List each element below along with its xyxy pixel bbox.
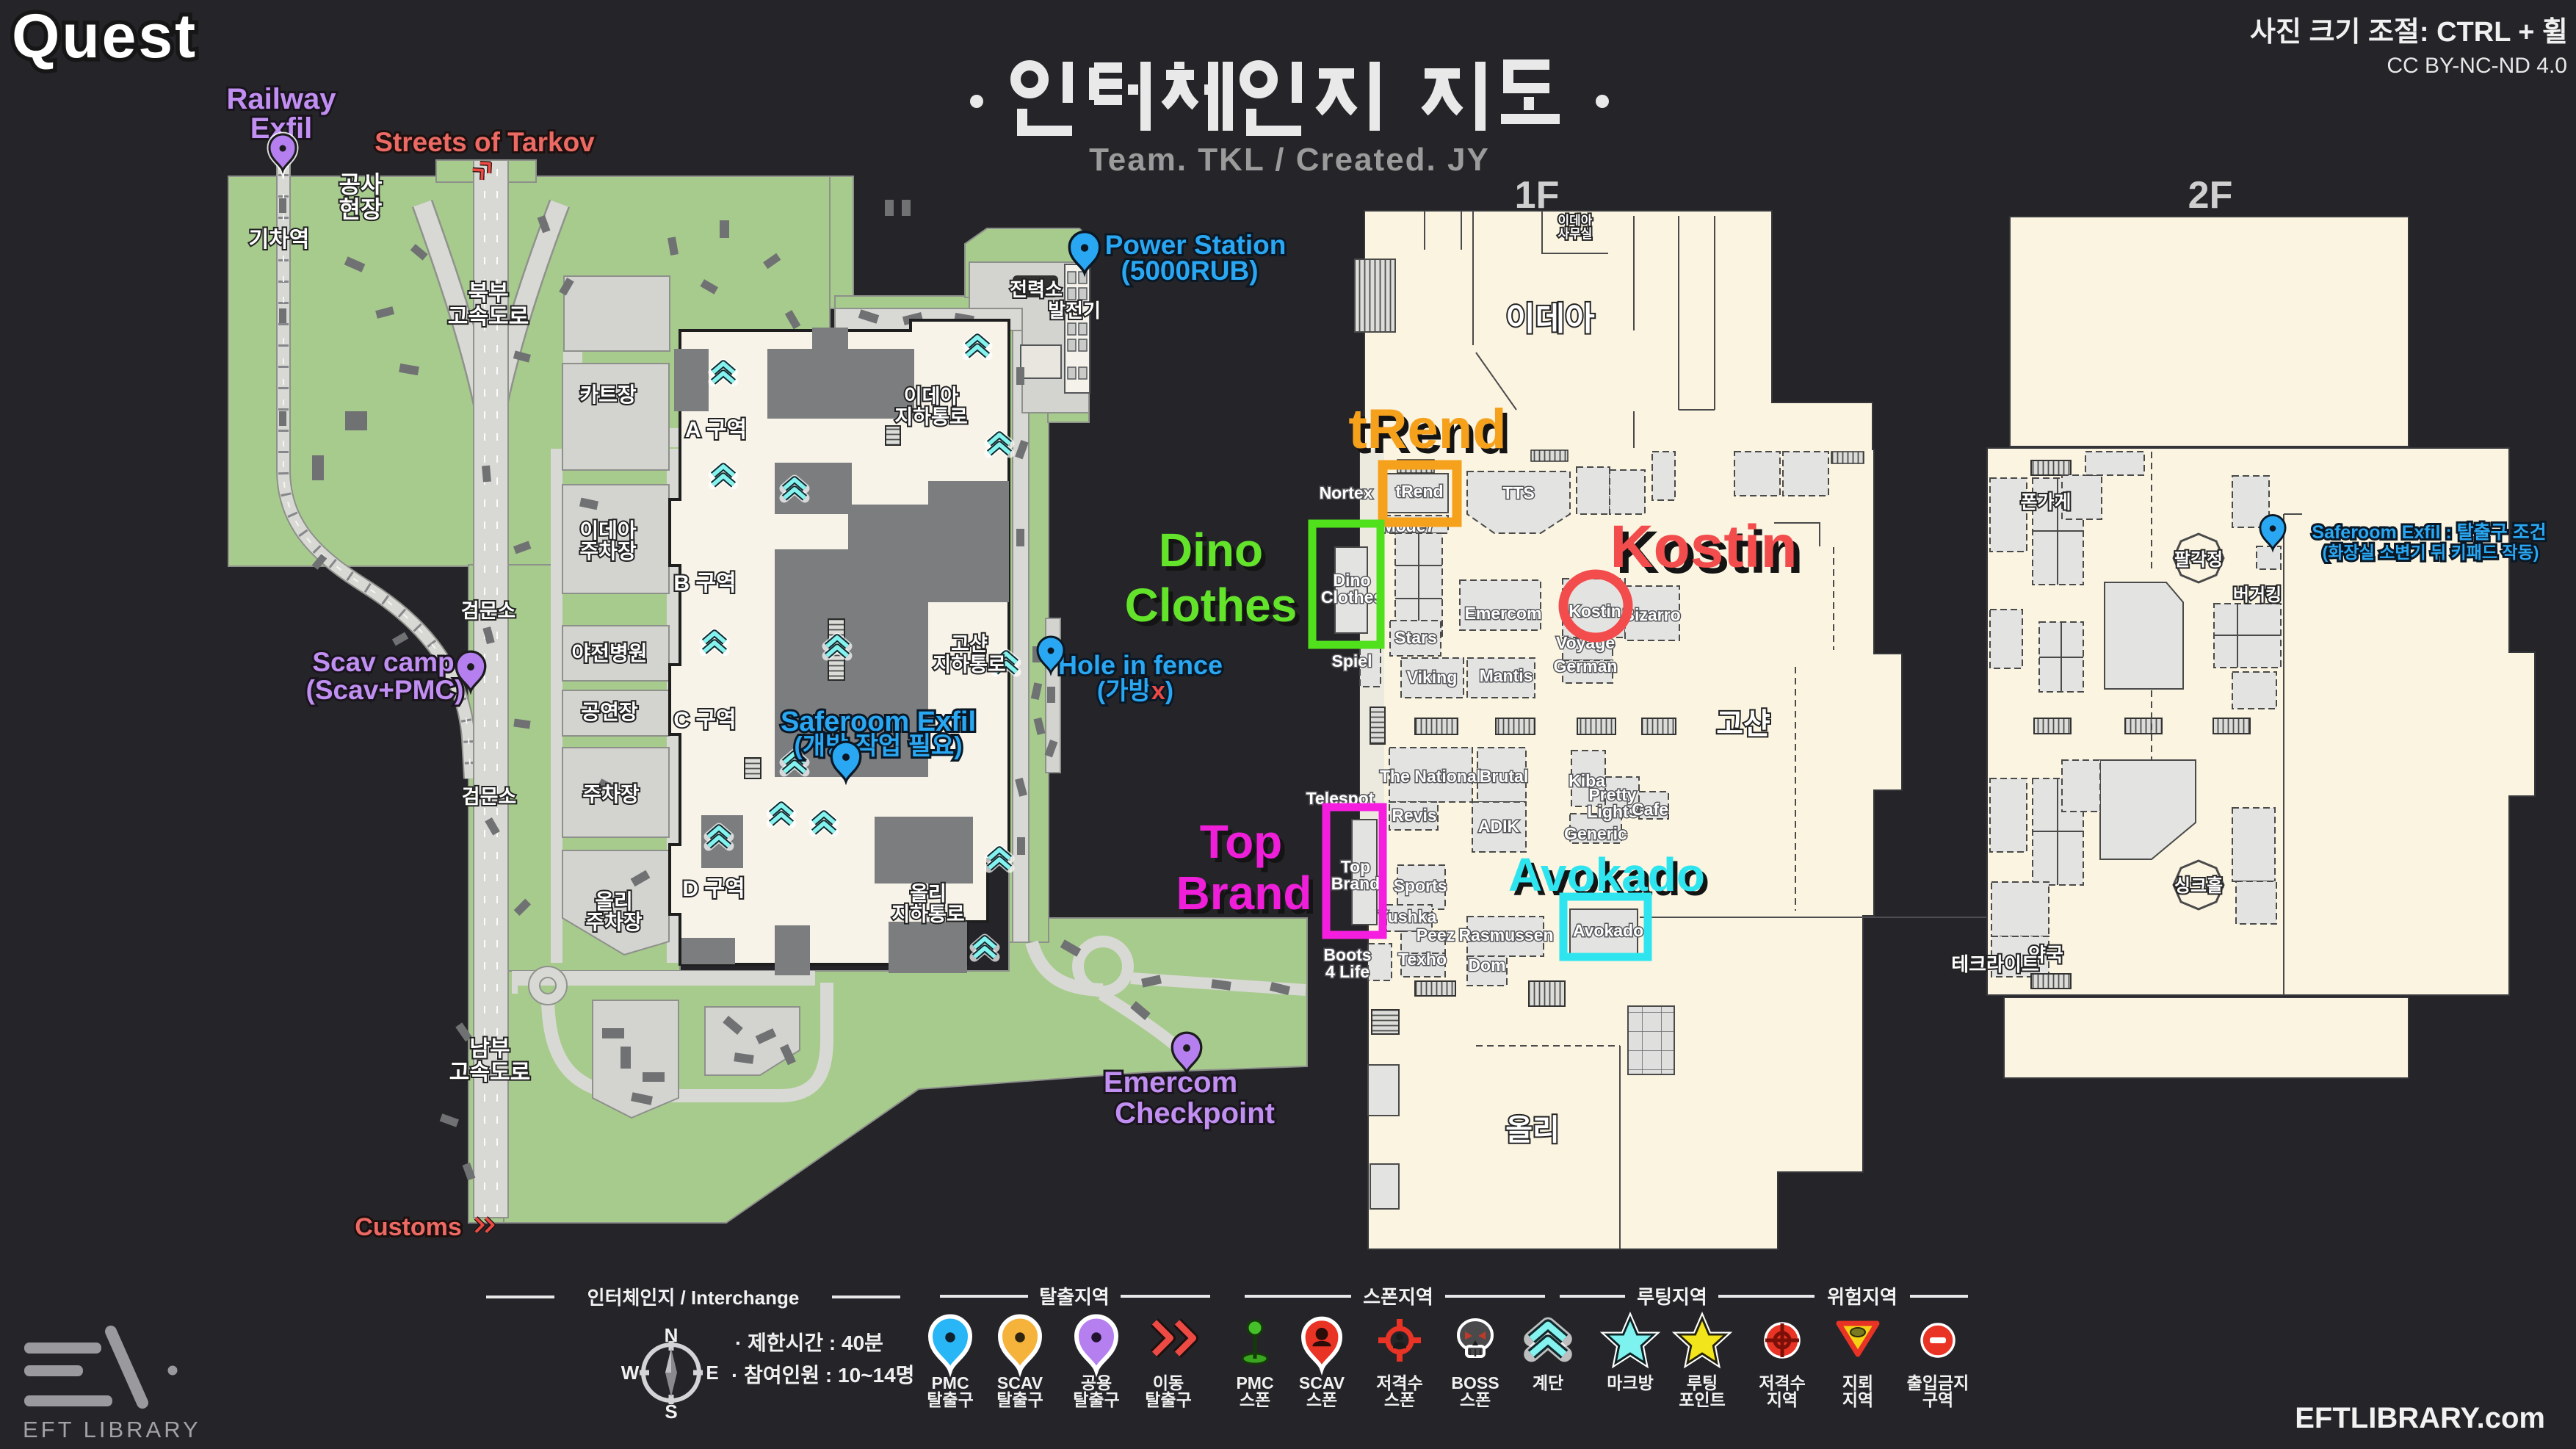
svg-text:Saferoom Exfil : 탈출구 조건: Saferoom Exfil : 탈출구 조건 <box>2312 522 2546 543</box>
svg-text:Sports: Sports <box>1394 876 1447 895</box>
svg-text:Nortex: Nortex <box>1320 483 1373 502</box>
svg-text:주차장: 주차장 <box>579 540 637 563</box>
svg-text:Clothes: Clothes <box>1125 579 1298 632</box>
svg-text:위험지역: 위험지역 <box>1827 1286 1897 1308</box>
svg-text:Emercom: Emercom <box>1104 1066 1237 1099</box>
svg-text:EFT LIBRARY: EFT LIBRARY <box>23 1417 201 1442</box>
svg-text:Stars: Stars <box>1394 628 1437 647</box>
svg-text:Kostin: Kostin <box>1610 513 1797 580</box>
svg-text:발전기: 발전기 <box>1048 300 1101 322</box>
svg-text:EFTLIBRARY.com: EFTLIBRARY.com <box>2295 1402 2545 1434</box>
svg-text:Team. TKL / Created. JY: Team. TKL / Created. JY <box>1089 142 1490 178</box>
svg-text:폰가게: 폰가게 <box>2020 492 2071 513</box>
svg-text:Revis: Revis <box>1392 806 1436 825</box>
svg-text:Checkpoint: Checkpoint <box>1115 1097 1275 1130</box>
svg-text:Railway: Railway <box>227 83 337 115</box>
svg-text:지역: 지역 <box>1842 1390 1873 1409</box>
svg-text:B 구역: B 구역 <box>673 571 736 596</box>
svg-text:Spiel: Spiel <box>1332 651 1372 671</box>
svg-text:구역: 구역 <box>1922 1390 1953 1409</box>
svg-text:남부: 남부 <box>469 1037 510 1061</box>
svg-text:Lights: Lights <box>1588 802 1638 821</box>
svg-text:고속도로: 고속도로 <box>448 305 529 329</box>
svg-text:Texho: Texho <box>1398 950 1447 969</box>
svg-text:Customs: Customs <box>355 1213 461 1241</box>
svg-text:주차장: 주차장 <box>582 783 640 806</box>
svg-text:지하통로: 지하통로 <box>894 406 967 428</box>
svg-text:지하통로: 지하통로 <box>891 903 964 925</box>
svg-text:계단: 계단 <box>1533 1373 1563 1392</box>
svg-text:Streets of Tarkov: Streets of Tarkov <box>375 127 595 157</box>
svg-text:탈출구: 탈출구 <box>1073 1390 1119 1409</box>
svg-text:올리: 올리 <box>910 883 947 905</box>
svg-text:Avokado: Avokado <box>1573 921 1643 940</box>
svg-text:카트장: 카트장 <box>579 383 637 406</box>
svg-text:N: N <box>665 1324 679 1346</box>
svg-text:북부: 북부 <box>468 281 508 306</box>
svg-text:W: W <box>621 1362 640 1384</box>
svg-text:스폰지역: 스폰지역 <box>1363 1286 1433 1308</box>
svg-text:Viking: Viking <box>1407 668 1458 687</box>
svg-text:The National: The National <box>1380 767 1481 786</box>
svg-text:지하통로: 지하통로 <box>933 654 1005 676</box>
svg-text:(개방 작업 필요): (개방 작업 필요) <box>794 732 962 760</box>
svg-text:D 구역: D 구역 <box>682 877 745 901</box>
svg-text:2F: 2F <box>2188 174 2233 217</box>
svg-text:야전병원: 야전병원 <box>571 642 647 665</box>
svg-text:Peez: Peez <box>1417 925 1455 944</box>
svg-text:마크방: 마크방 <box>1607 1373 1653 1392</box>
svg-text:탈출구: 탈출구 <box>996 1390 1043 1409</box>
svg-text:지역: 지역 <box>1767 1390 1798 1409</box>
svg-text:Clothes: Clothes <box>1321 588 1383 607</box>
svg-text:스폰: 스폰 <box>1240 1390 1270 1409</box>
svg-text:German: German <box>1554 657 1618 676</box>
svg-text:S: S <box>665 1401 677 1423</box>
svg-text:올리: 올리 <box>595 890 633 913</box>
svg-text:고속도로: 고속도로 <box>449 1060 530 1085</box>
svg-text:주차장: 주차장 <box>585 911 643 933</box>
svg-text:· 참여인원 : 10~14명: · 참여인원 : 10~14명 <box>731 1364 914 1387</box>
svg-text:검문소: 검문소 <box>461 600 516 622</box>
svg-text:탈출구: 탈출구 <box>927 1390 973 1409</box>
svg-text:Hole in fence: Hole in fence <box>1058 650 1223 680</box>
svg-text:Mantis: Mantis <box>1480 666 1533 685</box>
svg-text:사무실: 사무실 <box>1558 227 1593 241</box>
svg-text:싱크홀: 싱크홀 <box>2174 876 2223 896</box>
svg-text:고샨: 고샨 <box>1716 708 1770 740</box>
svg-text:탈출구: 탈출구 <box>1145 1390 1191 1409</box>
svg-text:Emercom: Emercom <box>1465 604 1542 623</box>
svg-text:포인트: 포인트 <box>1679 1390 1725 1409</box>
svg-text:올리: 올리 <box>1505 1114 1560 1146</box>
svg-text:스폰: 스폰 <box>1306 1390 1337 1409</box>
svg-text:Dino: Dino <box>1159 524 1263 577</box>
svg-text:(5000RUB): (5000RUB) <box>1121 256 1258 286</box>
svg-text:A 구역: A 구역 <box>685 418 747 442</box>
svg-text:Rasmussen: Rasmussen <box>1458 925 1553 944</box>
svg-text:Brand: Brand <box>1331 874 1380 893</box>
svg-text:팔각정: 팔각정 <box>2174 550 2223 570</box>
svg-text:루팅지역: 루팅지역 <box>1637 1286 1707 1308</box>
svg-text:전력소: 전력소 <box>1010 278 1063 300</box>
svg-text:Generic: Generic <box>1564 824 1627 843</box>
svg-text:Kostin: Kostin <box>1569 601 1621 621</box>
svg-text:이데아: 이데아 <box>579 519 637 542</box>
svg-text:ADIK: ADIK <box>1478 817 1520 836</box>
svg-text:테크라이트: 테크라이트 <box>1951 953 2039 975</box>
svg-text:버거킹: 버거킹 <box>2233 585 2282 605</box>
svg-text:Quest: Quest <box>12 1 198 71</box>
svg-text:사진 크기 조절: CTRL + 휠: 사진 크기 조절: CTRL + 휠 <box>2250 17 2568 48</box>
svg-text:CC BY-NC-ND 4.0: CC BY-NC-ND 4.0 <box>2387 54 2567 78</box>
svg-text:Top: Top <box>1200 815 1283 868</box>
svg-text:· 제한시간 : 40분: · 제한시간 : 40분 <box>735 1331 883 1354</box>
svg-text:(Scav+PMC): (Scav+PMC) <box>306 675 464 705</box>
svg-text:Brand: Brand <box>1176 867 1312 919</box>
svg-text:(화장실 소변기 뒤 키패드 작동): (화장실 소변기 뒤 키패드 작동) <box>2323 543 2539 562</box>
svg-text:(가방x): (가방x) <box>1097 677 1173 705</box>
svg-text:Scav camp: Scav camp <box>312 647 454 677</box>
svg-text:스폰: 스폰 <box>1384 1390 1415 1409</box>
svg-text:E: E <box>706 1362 718 1384</box>
svg-text:탈출지역: 탈출지역 <box>1039 1286 1110 1308</box>
svg-text:Cafe: Cafe <box>1632 800 1668 819</box>
svg-text:현장: 현장 <box>339 196 383 223</box>
svg-text:스폰: 스폰 <box>1460 1390 1491 1409</box>
svg-text:4 Life: 4 Life <box>1325 962 1370 981</box>
svg-text:TTS: TTS <box>1502 483 1534 502</box>
svg-text:공사: 공사 <box>339 171 383 198</box>
svg-text:기차역: 기차역 <box>249 228 310 252</box>
svg-text:공연장: 공연장 <box>581 701 638 723</box>
svg-text:이데아: 이데아 <box>1558 214 1593 228</box>
svg-text:검문소: 검문소 <box>462 786 517 808</box>
svg-text:인터체인지 / Interchange: 인터체인지 / Interchange <box>587 1287 800 1309</box>
svg-text:tRend: tRend <box>1348 398 1506 460</box>
svg-text:고샨: 고샨 <box>951 633 988 655</box>
svg-text:tRend: tRend <box>1395 482 1443 501</box>
svg-text:Dom: Dom <box>1468 955 1505 975</box>
svg-text:C 구역: C 구역 <box>673 708 736 732</box>
svg-text:이데아: 이데아 <box>1505 301 1594 337</box>
svg-text:이데아: 이데아 <box>904 386 959 408</box>
svg-text:Brutal: Brutal <box>1480 767 1528 786</box>
